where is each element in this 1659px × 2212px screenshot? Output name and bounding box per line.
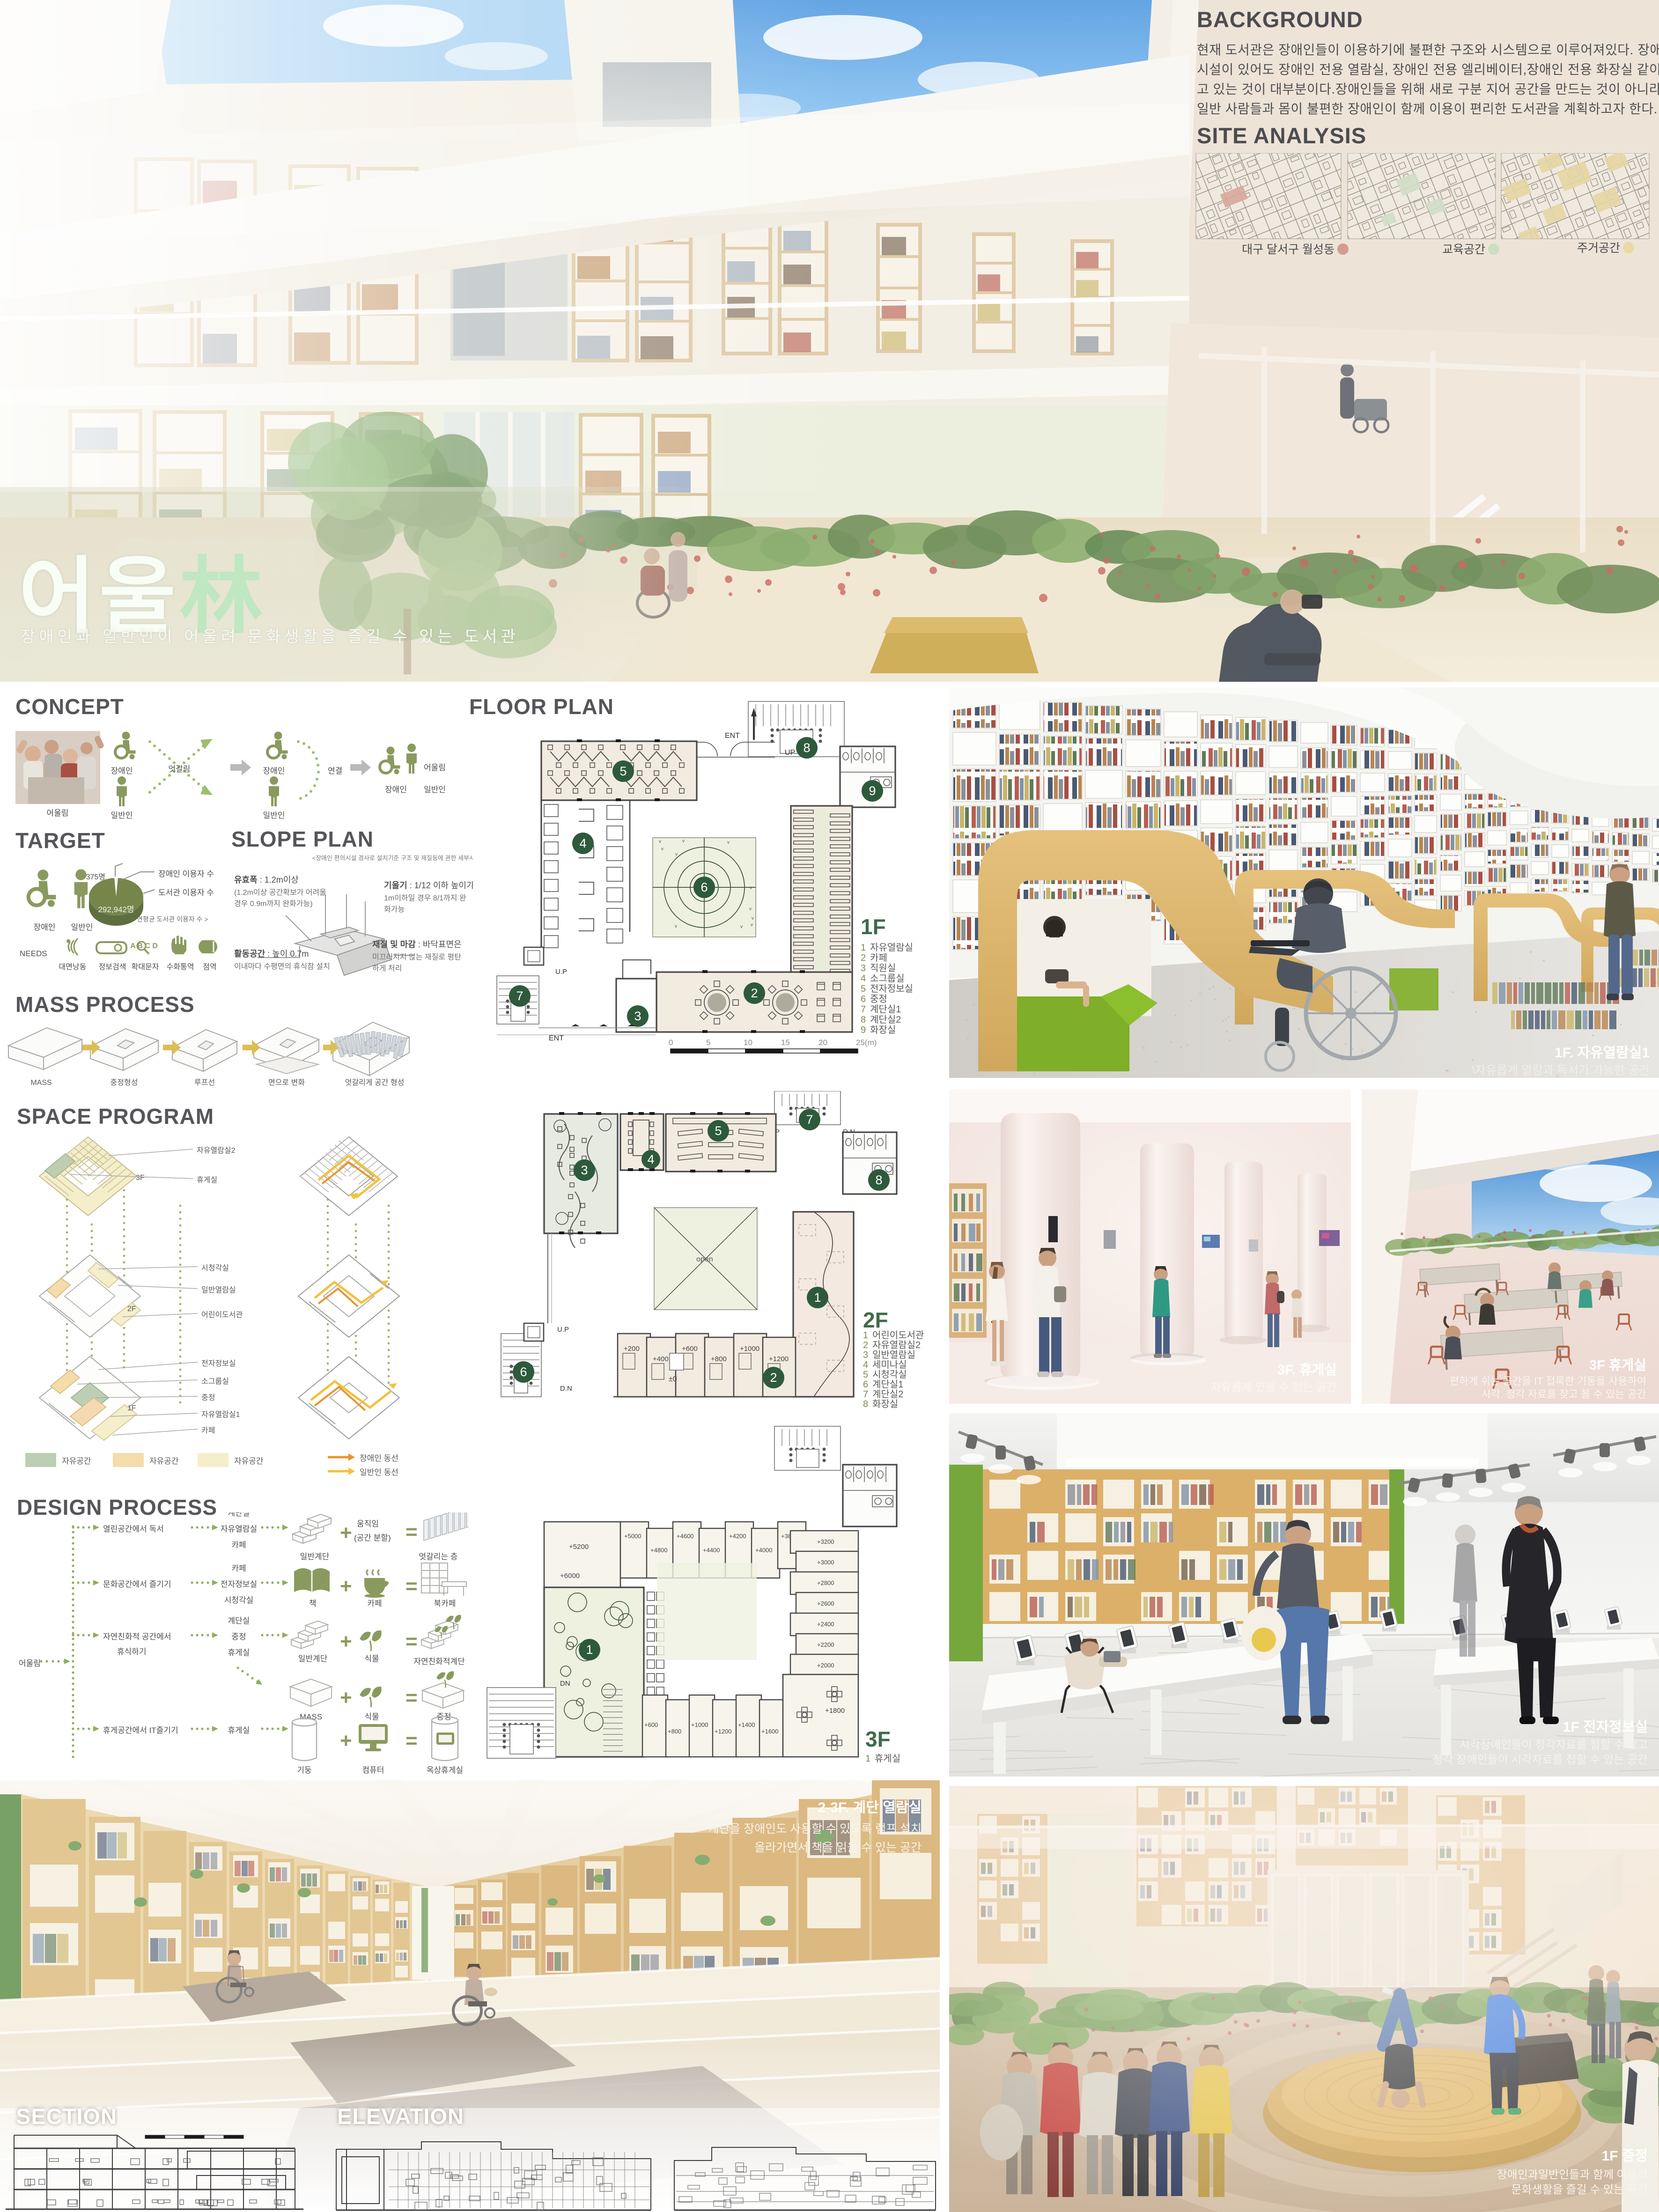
svg-text:엇갈리는 층: 엇갈리는 층 [419,1552,458,1561]
svg-text:어울림: 어울림 [424,763,446,772]
svg-text:+4400: +4400 [703,1547,720,1554]
svg-text:7: 7 [863,1389,868,1400]
svg-text:MASS: MASS [300,1712,322,1721]
svg-text:자연친화적 공간에서: 자연친화적 공간에서 [103,1632,171,1641]
svg-text:수화통역: 수화통역 [167,963,194,971]
svg-text:8: 8 [875,1173,882,1187]
svg-text:+1000: +1000 [691,1721,708,1728]
svg-text:+: + [340,1729,352,1752]
svg-text:자유열람실: 자유열람실 [870,942,913,953]
svg-text:활동공간 : 높이 0.7m: 활동공간 : 높이 0.7m [234,949,309,959]
svg-text:<장애인 편의시설 경사로 설치기준 구조 및 재질등에: <장애인 편의시설 경사로 설치기준 구조 및 재질등에 관한 세부시항> [312,855,473,862]
svg-text:=: = [406,1520,418,1543]
svg-text:< 연평균 도서관 이용자 수 >: < 연평균 도서관 이용자 수 > [131,915,208,923]
svg-text:(공간 분할): (공간 분할) [354,1534,391,1542]
svg-text:시각. 청각 자료를 찾고 볼 수 있는 공간: 시각. 청각 자료를 찾고 볼 수 있는 공간 [1482,1388,1647,1400]
svg-text:MASS: MASS [30,1079,52,1087]
svg-text:도서관 이용자 수: 도서관 이용자 수 [158,888,214,897]
svg-text:점역: 점역 [203,963,216,971]
svg-text:장애인: 장애인 [263,767,285,775]
svg-text:카페: 카페 [231,1564,246,1573]
svg-text:D.N: D.N [560,1385,572,1393]
svg-text:휴게실: 휴게실 [228,1726,250,1735]
svg-text:+3000: +3000 [817,1559,834,1566]
svg-text:+2000: +2000 [817,1662,834,1669]
svg-text:1F 중정: 1F 중정 [1601,2148,1648,2164]
svg-text:1: 1 [861,943,866,953]
svg-text:3F: 3F [865,1727,891,1751]
svg-text:2: 2 [770,1371,777,1385]
svg-text:=: = [406,1686,418,1709]
svg-text:어울림: 어울림 [47,809,69,818]
svg-text:장애인: 장애인 [385,785,407,794]
svg-text:4: 4 [863,1360,868,1370]
svg-text:+: + [340,1521,352,1544]
svg-text:화장실: 화장실 [872,1399,898,1409]
svg-text:5: 5 [706,1038,710,1047]
svg-text:문화공간에서 즐기기: 문화공간에서 즐기기 [103,1580,171,1589]
svg-text:열린공간에서 독서: 열린공간에서 독서 [103,1525,164,1534]
svg-text:5: 5 [619,764,627,778]
svg-text:하게 처리: 하게 처리 [372,964,402,973]
svg-text:1F: 1F [861,914,886,939]
svg-text:어린이도서관: 어린이도서관 [201,1311,243,1319]
svg-text:7: 7 [806,1113,813,1127]
svg-text:+1600: +1600 [761,1728,779,1735]
svg-text:10: 10 [744,1038,752,1047]
svg-text:+: + [340,1630,352,1653]
svg-text:미끄러지지 않는 재질로 평탄: 미끄러지지 않는 재질로 평탄 [372,953,461,961]
svg-text:v: v [727,840,730,845]
svg-text:시청각실: 시청각실 [201,1264,229,1272]
svg-text:일반열람실: 일반열람실 [872,1349,915,1360]
svg-text:4: 4 [861,973,866,984]
svg-text:3: 3 [581,1163,588,1177]
svg-text:5: 5 [863,1370,868,1380]
svg-text:2F: 2F [863,1308,888,1332]
svg-text:ENT: ENT [725,732,740,740]
svg-text:ENT: ENT [549,1034,564,1042]
svg-text:2: 2 [863,1340,868,1350]
svg-text:시청각실: 시청각실 [872,1369,907,1380]
svg-text:8: 8 [861,1015,866,1025]
svg-text:0: 0 [669,1038,673,1047]
svg-text:1m이하일 경우 8/1까지 완: 1m이하일 경우 8/1까지 완 [384,894,466,902]
svg-text:=: = [406,1575,418,1598]
svg-text:9: 9 [861,1025,866,1035]
svg-text:식물: 식물 [364,1712,379,1721]
svg-text:책: 책 [309,1599,317,1608]
svg-text:계단실1: 계단실1 [870,1004,901,1015]
svg-text:25(m): 25(m) [856,1038,877,1047]
svg-text:카페: 카페 [231,1541,246,1549]
svg-text:어울림: 어울림 [19,1659,41,1668]
svg-text:+5200: +5200 [569,1543,589,1551]
svg-text:세미나실: 세미나실 [872,1359,907,1370]
svg-text:+1000: +1000 [740,1345,759,1353]
svg-text:v: v [675,852,678,857]
svg-text:장애인 동선: 장애인 동선 [360,1454,398,1463]
svg-text:+800: +800 [668,1728,681,1735]
svg-text:화가능: 화가능 [384,905,405,914]
svg-text:+1400: +1400 [738,1721,755,1728]
svg-text:휴게실: 휴게실 [228,1648,250,1657]
svg-text:자유열람실2: 자유열람실2 [197,1146,236,1155]
svg-text:휴게실: 휴게실 [875,1753,900,1764]
svg-text:2-3F. 계단 열람실: 2-3F. 계단 열람실 [818,1800,922,1815]
svg-text:+4800: +4800 [650,1547,668,1554]
svg-text:확대문자: 확대문자 [132,963,159,971]
svg-text:292,942명: 292,942명 [98,905,134,914]
svg-text:컴퓨터: 컴퓨터 [362,1766,384,1775]
svg-text:+6000: +6000 [560,1572,580,1580]
svg-text:+2400: +2400 [817,1621,834,1628]
svg-text:=: = [406,1630,418,1653]
svg-text:전자정보실: 전자정보실 [870,983,913,994]
svg-text:1: 1 [586,1643,593,1657]
svg-text:편하게 쉬는 공간을 IT 접목한 기둥을 사용하여: 편하게 쉬는 공간을 IT 접목한 기둥을 사용하여 [1450,1375,1646,1387]
svg-text:UP: UP [785,749,795,757]
svg-text:루프선: 루프선 [194,1078,215,1087]
svg-text:면으로 변화: 면으로 변화 [268,1078,305,1087]
svg-text:장애인과일반인들과 함께 어울려: 장애인과일반인들과 함께 어울려 [1497,2168,1648,2181]
svg-text:전자정보실: 전자정보실 [221,1580,257,1589]
svg-text:청각 장애인들이 시각자료를 접할 수 있는 공간: 청각 장애인들이 시각자료를 접할 수 있는 공간 [1432,1754,1648,1766]
svg-text:+2200: +2200 [817,1641,834,1648]
svg-text:v: v [675,924,677,929]
svg-text:일반인: 일반인 [71,923,93,932]
svg-text:카페: 카페 [201,1426,215,1435]
svg-text:+4000: +4000 [755,1547,773,1554]
svg-text:+: + [340,1686,352,1709]
svg-text:카페: 카페 [870,952,887,963]
svg-text:+600: +600 [682,1345,698,1353]
svg-text:계단실2: 계단실2 [872,1389,903,1400]
svg-text:일반계단: 일반계단 [298,1654,328,1663]
svg-text:5: 5 [715,1124,722,1138]
svg-text:일반인: 일반인 [263,811,285,820]
svg-text:v: v [749,907,752,912]
svg-text:장애인: 장애인 [111,767,133,775]
svg-text:중정형성: 중정형성 [111,1078,138,1087]
svg-text:휴식하기: 휴식하기 [117,1647,147,1656]
svg-text:중정: 중정 [870,994,887,1004]
svg-text:문화생활을 즐길 수 있는 공간: 문화생활을 즐길 수 있는 공간 [1511,2183,1648,2196]
svg-text:DN: DN [560,1680,570,1688]
svg-text:소그룹실: 소그룹실 [201,1377,229,1386]
svg-text:3F 휴게실: 3F 휴게실 [1589,1357,1646,1373]
svg-text:2: 2 [861,953,866,963]
svg-text:15: 15 [781,1038,790,1047]
svg-text:자유공간: 자유공간 [62,1457,91,1466]
svg-text:+1800: +1800 [825,1707,845,1715]
svg-text:+2600: +2600 [817,1600,834,1607]
svg-text:기둥: 기둥 [297,1766,311,1775]
svg-text:v: v [682,839,685,844]
svg-text:+1200: +1200 [715,1728,732,1735]
svg-text:이내마다 수평면의 휴식참 설치: 이내마다 수평면의 휴식참 설치 [234,962,330,971]
svg-text:식물: 식물 [364,1654,379,1663]
svg-text:+5000: +5000 [624,1533,641,1540]
svg-text:3: 3 [861,963,866,973]
svg-text:교육공간: 교육공간 [1442,243,1485,256]
svg-text:1F: 1F [127,1404,136,1412]
svg-text:올라가면서 책을 읽을 수 있는 공간: 올라가면서 책을 읽을 수 있는 공간 [754,1841,922,1854]
svg-text:7: 7 [861,1004,866,1015]
svg-text:전자정보실: 전자정보실 [201,1359,236,1368]
svg-text:1F 전자정보실: 1F 전자정보실 [1563,1719,1648,1735]
svg-text:중정: 중정 [231,1632,246,1641]
svg-text:open: open [696,1255,713,1263]
svg-text:일반계단: 일반계단 [300,1552,330,1561]
svg-text:자유공간: 자유공간 [149,1457,179,1466]
svg-text:9: 9 [869,784,876,798]
svg-text:6: 6 [520,1365,527,1379]
svg-text:1: 1 [865,1754,870,1764]
svg-text:U.P: U.P [557,1326,569,1334]
svg-text:자유열람실: 자유열람실 [221,1525,257,1534]
svg-text:휴게공간에서 IT즐기기: 휴게공간에서 IT즐기기 [103,1726,178,1735]
svg-text:화장실: 화장실 [870,1025,896,1035]
svg-text:3F. 휴게실: 3F. 휴게실 [1277,1362,1337,1378]
svg-text:자유열람실1: 자유열람실1 [201,1410,240,1419]
svg-text:경우 0.9m까지 완화가능): 경우 0.9m까지 완화가능) [234,900,313,908]
svg-text:시청각실: 시청각실 [224,1596,254,1605]
svg-text:어린이도서관: 어린이도서관 [872,1330,924,1341]
svg-text:일반인: 일반인 [424,785,446,794]
svg-text:정보검색: 정보검색 [99,963,126,971]
svg-text:일반열람실: 일반열람실 [201,1286,236,1294]
svg-text:8: 8 [803,741,810,755]
svg-text:+400: +400 [653,1355,669,1363]
svg-text:+3200: +3200 [817,1538,834,1545]
svg-text:대구 달서구 월성동: 대구 달서구 월성동 [1242,243,1335,256]
svg-text:주거공간: 주거공간 [1577,242,1620,255]
svg-text:시각장애인들이 청각자료를 접할 수 있고: 시각장애인들이 청각자료를 접할 수 있고 [1460,1739,1648,1751]
svg-text:+1200: +1200 [769,1355,789,1363]
svg-text:(1.2m이상 공간확보가 어려울: (1.2m이상 공간확보가 어려울 [234,888,326,897]
svg-text:장애인 이용자 수: 장애인 이용자 수 [158,870,214,878]
svg-text:4: 4 [647,1152,654,1166]
svg-text:5: 5 [861,984,866,994]
svg-text:2F: 2F [127,1305,136,1313]
svg-text:6: 6 [700,880,708,894]
svg-text:2: 2 [751,986,758,1000]
svg-text:20: 20 [818,1038,827,1047]
svg-text:중정: 중정 [201,1394,215,1402]
svg-text:3: 3 [634,1009,641,1023]
svg-text:+4200: +4200 [729,1533,746,1540]
svg-text:6: 6 [863,1379,868,1390]
svg-text:v: v [751,922,753,928]
svg-text:엇갈림: 엇갈림 [169,765,191,774]
svg-text:\자유롭게 열람과 독서가 가능한 공간: \자유롭게 열람과 독서가 가능한 공간 [1472,1064,1650,1077]
svg-text:6: 6 [861,994,866,1004]
svg-text:+800: +800 [711,1355,727,1363]
svg-text:유효폭 : 1.2m이상: 유효폭 : 1.2m이상 [234,875,299,885]
svg-text:북카페: 북카페 [434,1599,456,1608]
svg-text:1: 1 [814,1290,821,1305]
svg-text:기울기 : 1/12 이하 높이가: 기울기 : 1/12 이하 높이가 [384,881,473,890]
svg-text:3: 3 [863,1350,868,1360]
svg-text:엇갈리게 공간 형성: 엇갈리게 공간 형성 [345,1078,405,1087]
svg-text:+: + [340,1575,352,1598]
svg-text:8: 8 [863,1399,868,1409]
svg-text:3F: 3F [136,1174,145,1182]
svg-text:계단실2: 계단실2 [870,1014,901,1025]
svg-text:v: v [750,885,752,891]
svg-text:일반인 동선: 일반인 동선 [360,1468,398,1477]
svg-text:U.P: U.P [555,968,567,976]
svg-text:1: 1 [863,1330,868,1341]
svg-text:장애인: 장애인 [34,923,56,932]
svg-text:+4600: +4600 [677,1533,694,1540]
svg-text:자유열람실2: 자유열람실2 [872,1340,921,1350]
svg-text:±0: ±0 [669,1375,677,1383]
svg-text:+2800: +2800 [817,1579,834,1586]
svg-text:옥상휴게실: 옥상휴게실 [427,1766,463,1775]
svg-text:재질 및 마감 : 바닥표면은: 재질 및 마감 : 바닥표면은 [372,940,462,949]
svg-text:자연친화적계단: 자연친화적계단 [413,1657,465,1666]
svg-text:연결: 연결 [328,767,342,775]
svg-text:7: 7 [516,989,523,1003]
svg-text:계단실1: 계단실1 [872,1379,903,1390]
svg-text:계단을 장애인도 사용할 수 있도록 램프 설치: 계단을 장애인도 사용할 수 있도록 램프 설치 [708,1822,922,1836]
svg-text:직원실: 직원실 [870,963,896,973]
svg-text:4: 4 [579,836,586,850]
svg-text:375명: 375명 [86,873,105,881]
svg-text:v: v [659,839,661,844]
svg-text:NEEDS: NEEDS [20,949,47,958]
svg-text:일반인: 일반인 [111,811,133,820]
svg-text:자유롭게 있을 수 있는 공간: 자유롭게 있을 수 있는 공간 [1210,1381,1337,1394]
svg-text:+200: +200 [624,1345,640,1353]
svg-text:v: v [661,847,664,852]
svg-text:소그룹실: 소그룹실 [870,973,905,984]
svg-text:계단실: 계단실 [228,1512,250,1518]
svg-text:휴게실: 휴게실 [197,1176,217,1184]
svg-text:자유공간: 자유공간 [234,1457,264,1466]
svg-text:v: v [740,924,743,929]
svg-text:움직임: 움직임 [357,1519,379,1528]
svg-text:계단실: 계단실 [228,1616,250,1625]
svg-text:v: v [752,916,754,921]
svg-text:대면낭동: 대면낭동 [59,963,87,971]
svg-text:=: = [406,1729,418,1752]
svg-text:+600: +600 [644,1721,658,1728]
svg-text:1F. 자유열람실1: 1F. 자유열람실1 [1555,1045,1650,1061]
svg-text:카페: 카페 [367,1599,382,1608]
